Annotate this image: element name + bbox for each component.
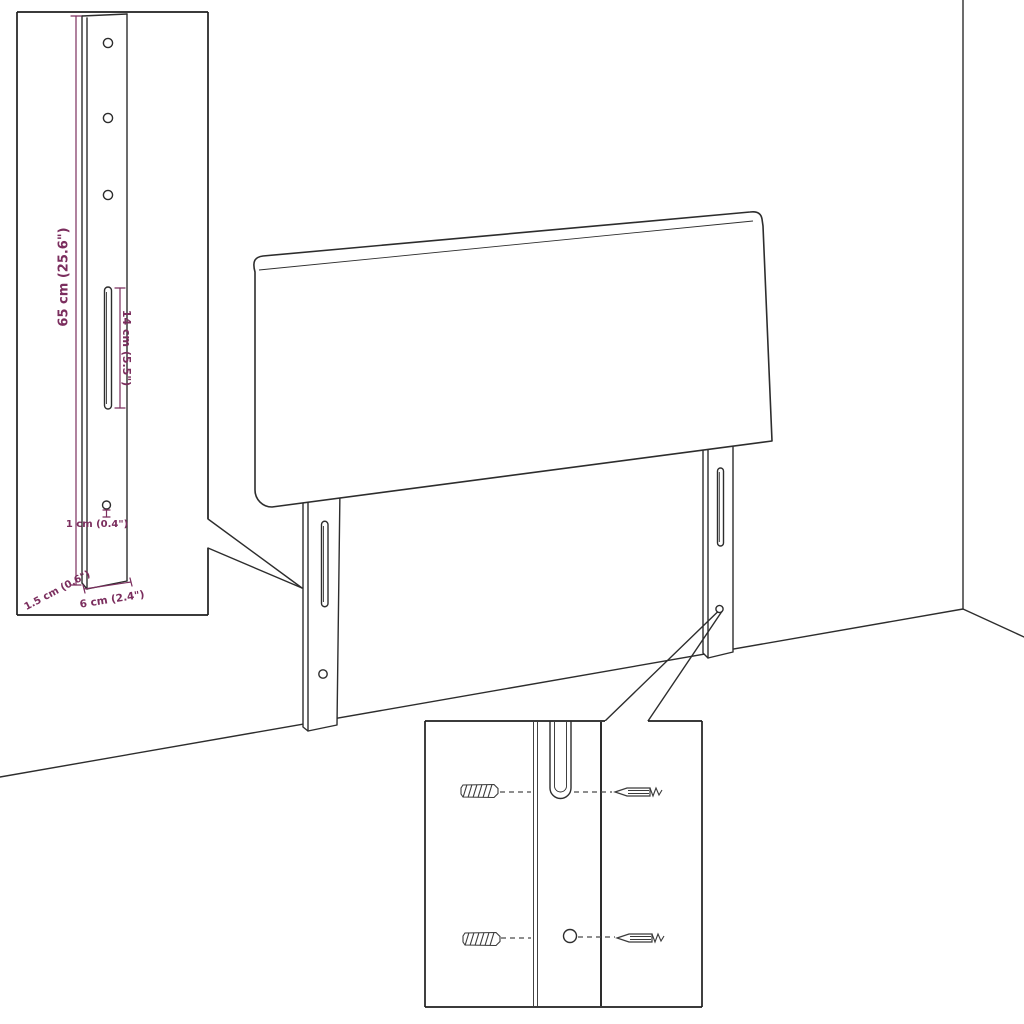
- right-leg-slot: [718, 468, 724, 546]
- inset-callout-lines: [208, 519, 302, 588]
- headboard-panel: [254, 212, 772, 507]
- detail-slot: [550, 722, 571, 799]
- label-slot-length: 14 cm (5.5"): [120, 310, 133, 386]
- headboard-left-leg: [303, 488, 340, 731]
- headboard-right-leg: [703, 434, 733, 658]
- mounting-detail-inset: [425, 612, 722, 1007]
- furniture-dimension-diagram: 65 cm (25.6") 14 cm (5.5") 1 cm (0.4") 1…: [0, 0, 1024, 1024]
- dimension-65cm: 65 cm (25.6"): [57, 16, 81, 585]
- left-leg-slot: [322, 521, 329, 607]
- bracket-slot: [105, 287, 112, 409]
- label-bracket-width: 6 cm (2.4"): [79, 589, 146, 611]
- label-hole-diameter: 1 cm (0.4"): [66, 519, 128, 530]
- label-bracket-height: 65 cm (25.6"): [57, 227, 72, 326]
